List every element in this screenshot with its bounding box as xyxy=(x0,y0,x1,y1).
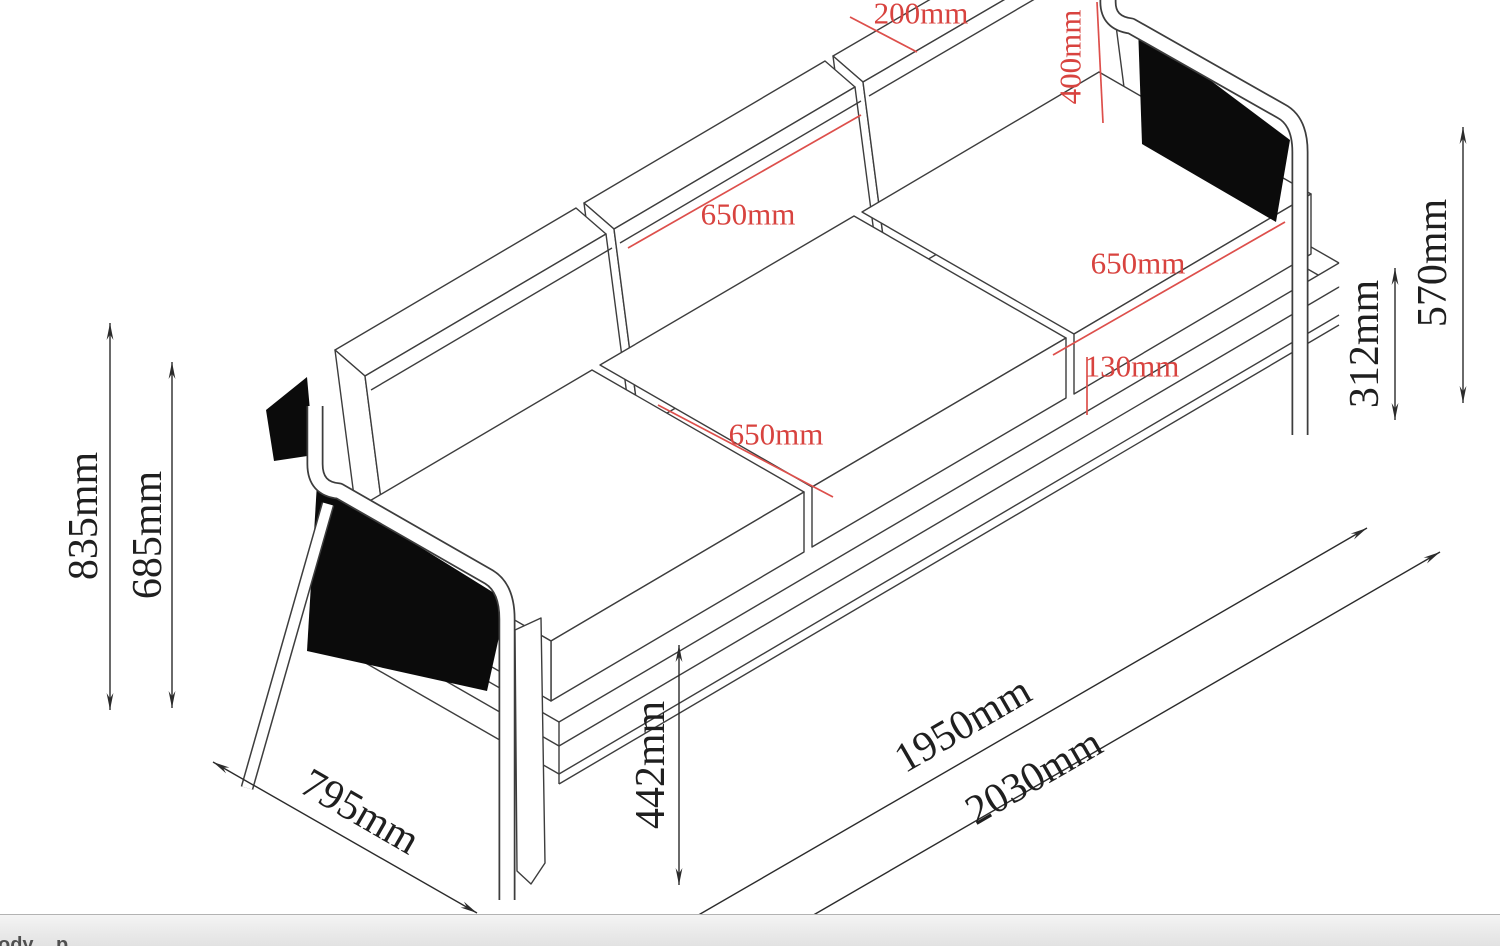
dim-label-650-backrest: 650mm xyxy=(701,197,796,232)
dim-label-650-seat-depth: 650mm xyxy=(729,417,824,452)
dim-label-200: 200mm xyxy=(874,0,969,31)
dim-label-835: 835mm xyxy=(61,452,107,581)
dim-label-685: 685mm xyxy=(125,471,171,600)
breadcrumb-tag-p[interactable]: p xyxy=(56,934,68,946)
statusbar: ody p xyxy=(0,914,1500,946)
dim-label-650-seat-width: 650mm xyxy=(1091,246,1186,281)
dim-label-442: 442mm xyxy=(628,701,674,830)
dim-label-400: 400mm xyxy=(1053,10,1088,105)
dim-label-795: 795mm xyxy=(293,760,427,864)
dim-label-312: 312mm xyxy=(1342,280,1388,409)
dim-label-570: 570mm xyxy=(1410,199,1456,328)
dim-label-130: 130mm xyxy=(1085,349,1180,384)
breadcrumb-tag-body[interactable]: ody xyxy=(0,934,34,946)
drawing-canvas: 200mm 400mm 650mm 650mm 650mm 130mm 835m… xyxy=(0,0,1500,946)
sofa-dimension-drawing: 200mm 400mm 650mm 650mm 650mm 130mm 835m… xyxy=(0,0,1500,946)
sofa-front-leg-left xyxy=(515,618,545,884)
